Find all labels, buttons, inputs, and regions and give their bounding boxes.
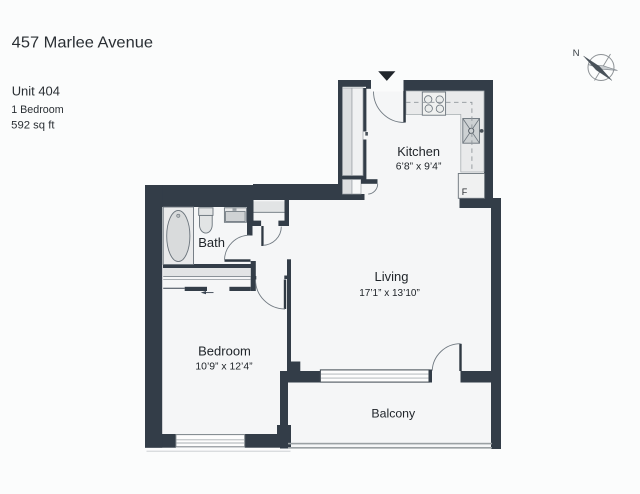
svg-text:17’1” x 13’10”: 17’1” x 13’10” <box>359 288 420 299</box>
svg-text:457 Marlee Avenue: 457 Marlee Avenue <box>12 35 153 52</box>
svg-text:F: F <box>462 187 468 197</box>
svg-text:Bath: Bath <box>198 235 225 250</box>
svg-text:Kitchen: Kitchen <box>397 144 440 159</box>
svg-text:Unit 404: Unit 404 <box>12 83 60 98</box>
svg-text:1 Bedroom: 1 Bedroom <box>11 104 64 116</box>
svg-text:N: N <box>573 48 580 59</box>
svg-text:592 sq ft: 592 sq ft <box>11 119 55 131</box>
svg-text:6’8” x 9’4”: 6’8” x 9’4” <box>396 161 442 172</box>
svg-text:10’9” x 12’4”: 10’9” x 12’4” <box>195 361 253 372</box>
svg-text:Balcony: Balcony <box>371 407 416 421</box>
svg-text:Bedroom: Bedroom <box>198 344 251 359</box>
svg-text:Living: Living <box>375 269 409 284</box>
